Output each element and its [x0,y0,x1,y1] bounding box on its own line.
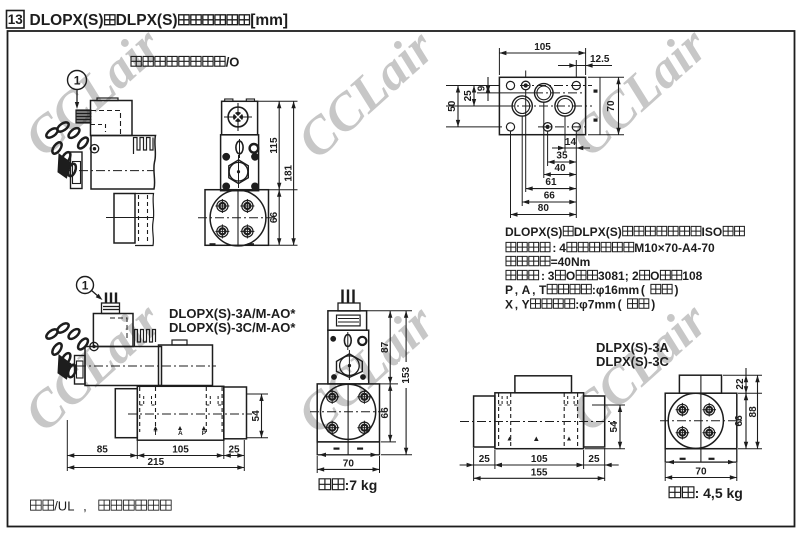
svg-text:70: 70 [343,459,355,470]
svg-text:66: 66 [544,191,556,202]
svg-text:54: 54 [251,410,262,422]
svg-text:66: 66 [380,407,391,419]
svg-text:DLPX(S): DLPX(S) [574,225,622,239]
svg-text:,: , [83,499,87,514]
svg-text:P: P [505,283,513,297]
svg-text:25: 25 [463,90,474,102]
svg-text:X: X [505,298,513,312]
svg-text:DLOPX(S): DLOPX(S) [505,225,562,239]
svg-text:DLPX(S)-3A: DLPX(S)-3A [596,340,670,355]
svg-text:[mm]: [mm] [250,12,288,29]
svg-text:DLOPX(S): DLOPX(S) [30,12,104,29]
svg-text:,: , [515,298,518,312]
svg-text:O: O [566,269,575,283]
svg-text::: : [552,241,556,255]
svg-text:DLPX(S): DLPX(S) [116,12,178,29]
svg-text:14: 14 [565,137,577,148]
svg-text:40: 40 [555,163,567,174]
svg-text:70: 70 [695,467,707,478]
svg-text:): ) [651,298,655,312]
svg-text:87: 87 [380,341,391,353]
svg-text:ISO: ISO [702,225,723,239]
svg-text:181: 181 [284,164,295,181]
svg-text:13: 13 [8,12,24,27]
svg-text::: : [541,269,545,283]
svg-text:DLOPX(S)-3A/M-AO*: DLOPX(S)-3A/M-AO* [169,306,296,321]
svg-text:108: 108 [682,269,702,283]
svg-text:25: 25 [229,445,241,456]
svg-text:61: 61 [545,177,557,188]
svg-text:105: 105 [531,454,548,465]
svg-text:9: 9 [477,85,488,91]
svg-text:,: , [515,283,518,297]
svg-text:(: ( [618,298,622,312]
svg-text:215: 215 [148,457,165,468]
svg-text:3081; 2: 3081; 2 [598,269,639,283]
svg-text:66: 66 [269,212,280,224]
svg-text:115: 115 [269,137,280,154]
svg-text:1: 1 [82,279,89,293]
svg-text:DLOPX(S)-3C/M-AO*: DLOPX(S)-3C/M-AO* [169,320,296,335]
svg-text:105: 105 [172,445,189,456]
svg-text:80: 80 [538,203,550,214]
svg-text:O: O [650,269,659,283]
svg-text:(: ( [641,283,645,297]
svg-text:/O: /O [226,55,240,70]
svg-text:Y: Y [522,298,530,312]
svg-text:: 4,5 kg: : 4,5 kg [695,485,743,501]
svg-text:70: 70 [606,100,617,112]
svg-text:85: 85 [97,445,109,456]
svg-text:/UL: /UL [54,499,74,514]
svg-text:153: 153 [401,366,412,383]
svg-text:3: 3 [548,269,555,283]
svg-text:,: , [532,283,535,297]
svg-text:1: 1 [74,74,81,88]
svg-text::7 kg: :7 kg [345,477,378,493]
svg-text:A: A [522,283,531,297]
svg-text::φ16mm: :φ16mm [592,283,639,297]
svg-text:M10×70-A4-70: M10×70-A4-70 [634,241,715,255]
svg-text:T: T [539,283,547,297]
svg-text:155: 155 [531,468,548,479]
svg-text:T: T [154,430,158,437]
svg-text:66: 66 [734,415,745,427]
svg-text:88: 88 [748,406,759,418]
svg-text::φ7mm: :φ7mm [575,298,616,312]
svg-text:=40Nm: =40Nm [551,255,591,269]
svg-text:25: 25 [479,454,491,465]
svg-text:A: A [178,430,183,437]
svg-text:4: 4 [559,241,566,255]
svg-text:12.5: 12.5 [590,54,610,65]
svg-text:DLPX(S)-3C: DLPX(S)-3C [596,354,670,369]
svg-text:22: 22 [735,378,746,390]
svg-text:54: 54 [609,421,620,433]
svg-text:P: P [202,430,207,437]
svg-text:25: 25 [588,454,600,465]
svg-text:): ) [675,283,679,297]
svg-text:50: 50 [447,100,458,112]
svg-text:35: 35 [556,151,568,162]
svg-text:105: 105 [534,42,551,53]
